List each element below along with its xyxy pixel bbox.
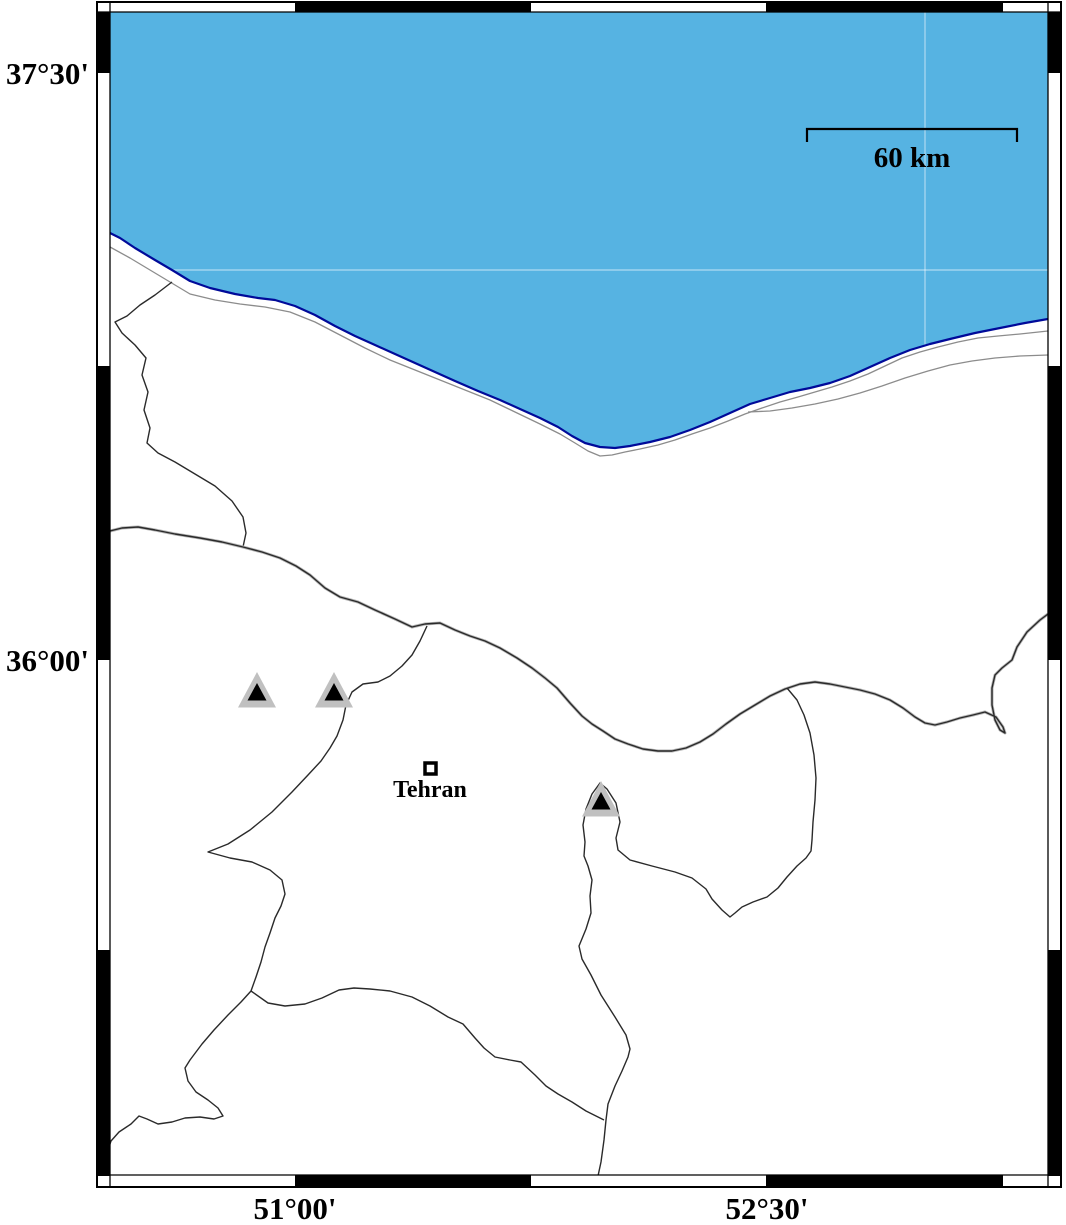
latitude-label-top: 37°30': [6, 56, 89, 91]
longitude-label-east: 52°30': [725, 1191, 808, 1225]
map-page: Tehran 60 km 37°30' 36°00' 51°00' 52°30': [0, 0, 1066, 1225]
longitude-label-west: 51°00': [253, 1191, 336, 1225]
scale-bar-label: 60 km: [874, 142, 951, 174]
city-square-marker: [425, 763, 436, 774]
map-canvas: Tehran 60 km 37°30' 36°00' 51°00' 52°30': [0, 0, 1066, 1225]
city-label: Tehran: [393, 777, 467, 803]
latitude-label-middle: 36°00': [6, 643, 89, 678]
